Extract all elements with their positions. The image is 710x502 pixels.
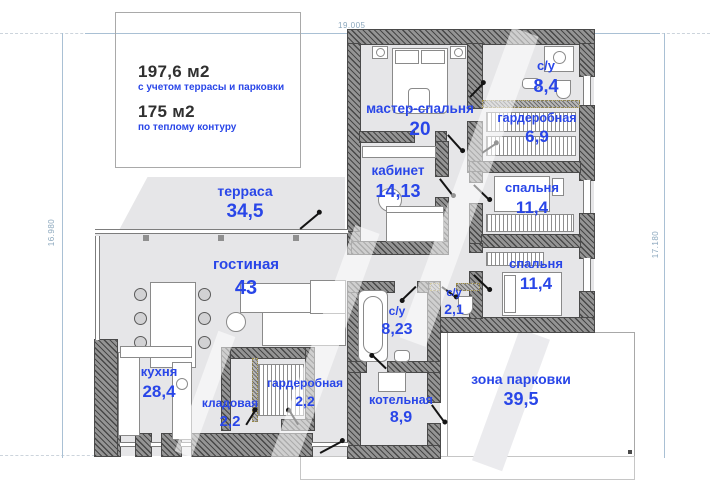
room-label-bedroom-2: спальня11,4 — [509, 256, 563, 295]
room-name: с/у — [533, 58, 558, 75]
room-name: спальня — [509, 256, 563, 273]
wall — [482, 235, 580, 247]
room-area: 20 — [366, 118, 474, 143]
wall — [348, 370, 360, 458]
room-area: 39,5 — [471, 388, 571, 411]
entrance-walkway — [300, 456, 635, 480]
sofa-back — [386, 206, 444, 213]
washbasin — [394, 350, 410, 362]
room-area: 8,23 — [381, 320, 412, 341]
survey-marker — [628, 450, 632, 454]
room-label-wardrobe-small: гардеробная2,2 — [267, 376, 343, 410]
kitchen-counter — [118, 352, 140, 436]
chair — [198, 312, 211, 325]
room-name: кабинет — [372, 162, 425, 180]
room-area: 11,4 — [509, 273, 563, 295]
room-label-parking: зона парковки39,5 — [471, 370, 571, 412]
room-area: 8,4 — [533, 75, 558, 98]
window — [120, 442, 136, 447]
room-label-cabinet: кабинет14,13 — [372, 162, 425, 203]
coffee-table — [226, 312, 246, 332]
chair — [134, 312, 147, 325]
lamp — [454, 48, 463, 57]
room-name: спальня — [505, 180, 559, 197]
room-name: с/у — [381, 304, 412, 320]
room-name: с/у — [444, 286, 463, 300]
room-name: гардеробная — [267, 376, 343, 392]
chair — [198, 288, 211, 301]
glazing-post — [218, 235, 224, 241]
window — [583, 180, 591, 214]
wall — [436, 142, 448, 176]
room-name: гардеробная — [497, 110, 576, 126]
heated-area-caption: по теплому контуру — [138, 122, 236, 133]
room-name: гостиная — [213, 255, 279, 275]
dimension-label-top: 19.005 — [338, 21, 365, 30]
room-name: котельная — [369, 392, 433, 408]
room-area: 6,9 — [497, 126, 576, 148]
room-label-kitchen: кухня28,4 — [141, 364, 178, 403]
window — [151, 442, 162, 447]
room-label-bath-small: с/у2,1 — [444, 286, 463, 318]
room-name: кладовая — [202, 396, 258, 412]
dimension-label-right: 17.180 — [651, 231, 660, 258]
wall — [348, 30, 594, 44]
wall — [136, 434, 151, 456]
room-name: мастер-спальня — [366, 100, 474, 118]
room-area: 8,9 — [369, 408, 433, 429]
room-area: 34,5 — [217, 200, 272, 225]
room-area: 2,1 — [444, 300, 463, 318]
wall — [580, 44, 594, 76]
wall — [388, 362, 440, 372]
room-area: 14,13 — [372, 180, 425, 203]
site-boundary-line — [0, 455, 95, 456]
room-name: зона парковки — [471, 370, 571, 388]
boiler-unit — [378, 372, 406, 392]
pillow — [395, 50, 419, 64]
wall — [95, 340, 117, 456]
room-name: кухня — [141, 364, 178, 381]
wall — [348, 44, 360, 232]
wall — [222, 348, 314, 358]
dimension-line-left — [62, 33, 63, 458]
glazing-post — [143, 235, 149, 241]
wall — [430, 318, 594, 332]
chair — [134, 288, 147, 301]
room-area: 11,4 — [505, 197, 559, 219]
sink — [176, 378, 188, 390]
dimension-label-left: 16.980 — [47, 219, 56, 246]
wall — [580, 106, 594, 180]
floor-plan-canvas: 19.005 16.980 17.180 — [0, 0, 710, 502]
pillow — [421, 50, 445, 64]
room-area: 2,2 — [267, 392, 343, 410]
room-label-terrace: терраса34,5 — [217, 182, 272, 225]
wall — [348, 446, 440, 458]
room-label-pantry: кладовая2,2 — [202, 396, 258, 431]
kitchen-counter — [120, 346, 192, 358]
total-area-value: 197,6 м2 — [138, 62, 210, 82]
desk — [362, 146, 436, 158]
room-area: 43 — [213, 275, 279, 301]
lamp — [376, 48, 385, 57]
room-label-bath-main: с/у8,4 — [533, 58, 558, 98]
room-label-wardrobe-main: гардеробная6,9 — [497, 110, 576, 148]
wall — [348, 362, 366, 372]
room-label-bedroom-1: спальня11,4 — [505, 180, 559, 219]
total-area-caption: с учетом террасы и парковки — [138, 82, 284, 93]
dimension-line-right — [664, 33, 665, 458]
room-area: 2,2 — [202, 412, 258, 432]
room-area: 28,4 — [141, 381, 178, 403]
glazing-post — [293, 235, 299, 241]
room-label-bath-2: с/у8,23 — [381, 304, 412, 340]
room-label-living: гостиная43 — [213, 255, 279, 301]
wall — [468, 44, 482, 108]
bathtub-inner — [363, 296, 383, 354]
window — [583, 258, 591, 292]
chair — [198, 336, 211, 349]
wall — [470, 244, 482, 252]
room-label-boiler: котельная8,9 — [369, 392, 433, 429]
terrace-glazing — [95, 229, 348, 234]
room-name: терраса — [217, 182, 272, 200]
wall — [580, 214, 594, 258]
glazing-left — [95, 236, 100, 340]
window — [583, 76, 591, 106]
room-label-master: мастер-спальня20 — [366, 100, 474, 142]
heated-area-value: 175 м2 — [138, 102, 195, 122]
